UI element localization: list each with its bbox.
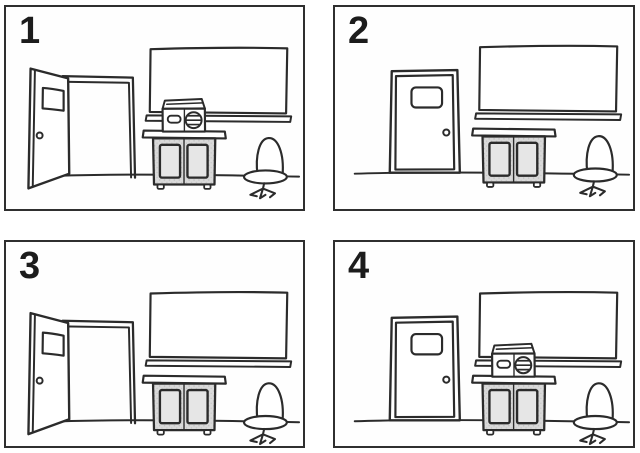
scene-4 xyxy=(335,242,633,446)
scene-3 xyxy=(6,242,303,446)
cabinet xyxy=(472,129,555,187)
radio-tape-player xyxy=(163,99,205,132)
cabinet xyxy=(143,376,226,435)
panel-number: 1 xyxy=(19,12,40,50)
cabinet xyxy=(143,131,226,189)
panel-4: 4 xyxy=(333,240,635,448)
open-door xyxy=(28,313,135,434)
swivel-chair xyxy=(244,383,287,444)
cabinet xyxy=(472,376,555,435)
closed-door xyxy=(390,317,460,421)
swivel-chair xyxy=(574,383,617,444)
panel-number: 4 xyxy=(348,247,369,285)
panel-3: 3 xyxy=(4,240,305,448)
swivel-chair xyxy=(574,136,617,196)
panel-1: 1 xyxy=(4,5,305,211)
panel-2: 2 xyxy=(333,5,635,211)
blackboard xyxy=(475,46,621,120)
blackboard xyxy=(146,292,292,367)
radio-tape-player xyxy=(492,344,535,377)
scene-2 xyxy=(335,7,633,209)
closed-door xyxy=(390,70,460,173)
panel-number: 2 xyxy=(348,12,369,50)
open-door xyxy=(28,69,135,189)
swivel-chair xyxy=(244,138,287,198)
panel-number: 3 xyxy=(19,247,40,285)
picture-sequence-worksheet: 1 2 xyxy=(0,0,640,453)
scene-1 xyxy=(6,7,303,209)
